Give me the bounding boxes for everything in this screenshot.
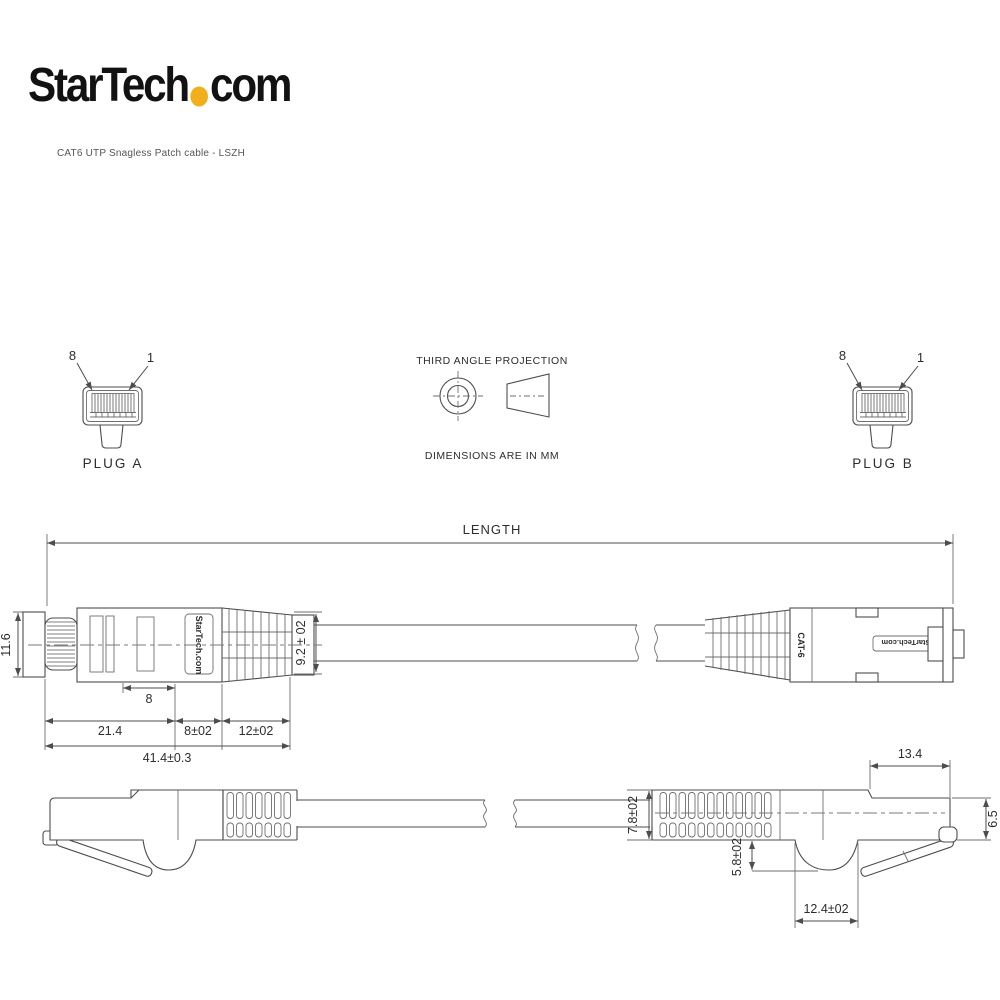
dim-plug-height-6-5: 6.5 — [986, 810, 1000, 827]
top-view-drawing: LENGTH 11.6 StarTech.com 9.2 ± 02 — [0, 522, 964, 765]
dim-contact-8: 8 — [146, 692, 153, 706]
body-marking-text: StarTech.com — [881, 638, 930, 647]
dim-body-21-4: 21.4 — [98, 724, 122, 738]
projection-circles-icon — [433, 371, 483, 421]
dim-length-label: LENGTH — [463, 522, 522, 537]
units-note: DIMENSIONS ARE IN MM — [425, 450, 559, 462]
side-view-drawing: 7.8±02 13.4 6.5 5.8±02 12.4±02 — [43, 747, 1000, 928]
plug-b-view: PLUG B — [839, 348, 925, 471]
technical-drawing: 8 1 PLUG A PLUG B THIRD ANGLE PROJECTION… — [0, 0, 1000, 1000]
plug-a-view: PLUG A — [69, 348, 155, 471]
dim-overall-41-4: 41.4±0.3 — [143, 751, 192, 765]
projection-title: THIRD ANGLE PROJECTION — [416, 355, 568, 367]
dim-latch-13-4: 13.4 — [898, 747, 922, 761]
dim-plug-height-11-6: 11.6 — [0, 633, 13, 656]
top-view-dimensions: 8 21.4 8±02 12±02 41.4±0.3 — [45, 677, 290, 765]
dim-boot-12-02: 12±02 — [239, 724, 274, 738]
dim-bump-depth-5-8: 5.8±02 — [730, 838, 744, 876]
dim-boot-8-02: 8±02 — [184, 724, 212, 738]
third-angle-projection-symbol: THIRD ANGLE PROJECTION DIMENSIONS ARE IN… — [416, 355, 568, 462]
dim-bump-len-12-4: 12.4±02 — [803, 902, 848, 916]
projection-cone-icon — [507, 374, 549, 417]
dim-boot-od-7-8: 7.8±02 — [626, 796, 640, 834]
plug-b-label: PLUG B — [852, 456, 914, 471]
plug-a-label: PLUG A — [83, 456, 144, 471]
cat6-marking-text: CAT-6 — [796, 632, 806, 657]
dim-boot-exit-od: 9.2 ± 02 — [294, 620, 308, 665]
